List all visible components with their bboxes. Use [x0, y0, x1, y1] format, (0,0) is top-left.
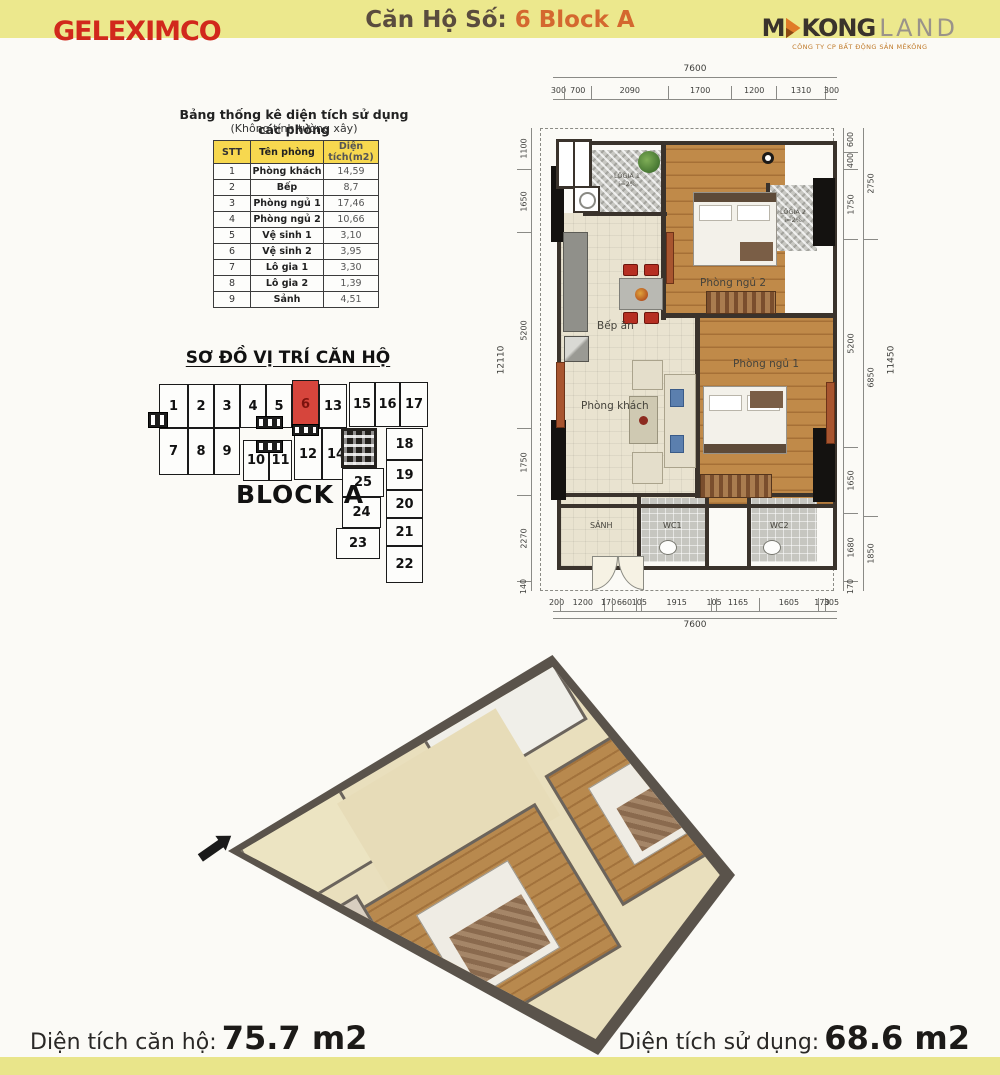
label-wc1: WC1	[663, 521, 682, 530]
fridge-icon	[564, 336, 589, 362]
dim-right-total: 11450	[884, 128, 898, 591]
area-table-head-row: STTTên phòngDiện tích(m2)	[214, 141, 379, 164]
footer-right-label: Diện tích sử dụng:	[618, 1030, 819, 1055]
wardrobe-bedroom1	[700, 474, 772, 498]
unit-8: 8	[188, 428, 214, 475]
footer-usable-area: Diện tích sử dụng: 68.6 m2	[618, 1019, 970, 1057]
dim-right-inner-segments: 6004001750520016501680170	[843, 128, 858, 591]
dimension-segment: 1915	[641, 598, 711, 611]
dining-chair	[623, 264, 638, 276]
dining-chair	[644, 264, 659, 276]
unit-13: 13	[319, 384, 347, 428]
apartment-3d-render	[228, 655, 735, 1055]
table-row: 1Phòng khách14,59	[214, 164, 379, 180]
unit-6: 6	[292, 380, 319, 428]
mekong-arrow-icon	[786, 18, 801, 39]
dimension-segment: 1750	[844, 169, 858, 240]
unit-18: 18	[386, 428, 423, 460]
entrance-arrow-icon	[198, 839, 224, 861]
dimension-segment: 5200	[844, 239, 858, 447]
footer-apartment-area: Diện tích căn hộ: 75.7 m2	[30, 1019, 367, 1057]
dimension-segment: 1200	[560, 598, 604, 611]
block-a-label: BLOCK A	[210, 480, 390, 509]
window-panel	[556, 362, 565, 428]
elevator-icon	[256, 440, 283, 453]
sofa	[664, 374, 696, 468]
stairs-core-icon	[341, 428, 377, 468]
dimension-segment: 1165	[716, 598, 759, 611]
dim-bottom-segments: 2001200170660105191510511651605170305	[553, 598, 837, 612]
dimension-segment: 1850	[864, 516, 878, 591]
kitchen-counter	[563, 232, 588, 332]
table-row: 3Phòng ngủ 117,46	[214, 196, 379, 212]
toilet-icon	[659, 540, 677, 555]
dimension-segment: 300	[553, 86, 564, 99]
dim-bottom-total: 7600	[553, 618, 837, 633]
dining-chair	[644, 312, 659, 324]
dimension-segment: 1650	[844, 447, 858, 514]
table-row: 8Lô gia 21,39	[214, 276, 379, 292]
ceiling-fan-icon	[762, 152, 774, 164]
flyer-page: GELEXIMCO Căn Hộ Số: 6 Block A M KONG LA…	[0, 0, 1000, 1075]
dimension-segment: 1650	[517, 169, 531, 232]
bed-bedroom1	[703, 386, 787, 454]
dim-top-total: 7600	[553, 64, 837, 78]
armchair	[632, 360, 663, 390]
dimension-segment: 140	[517, 581, 531, 591]
dimension-segment: 170	[604, 598, 611, 611]
unit-23: 23	[336, 528, 380, 559]
structural-column	[813, 178, 835, 246]
dimension-segment: 2270	[517, 495, 531, 581]
dimension-segment: 1750	[517, 428, 531, 495]
footer-band	[0, 1057, 1000, 1075]
column-header: Tên phòng	[251, 141, 324, 164]
dimension-segment: 1100	[517, 128, 531, 169]
unit-3: 3	[214, 384, 240, 428]
label-logia1: LÔGIA 1i=2%	[600, 172, 654, 188]
unit-15: 15	[349, 382, 375, 427]
dimension-segment: 2750	[864, 128, 878, 239]
unit-7: 7	[159, 428, 188, 475]
table-row: 9Sảnh4,51	[214, 292, 379, 308]
interior-wall	[705, 497, 709, 567]
interior-wall	[747, 497, 751, 567]
title-unit: 6 Block A	[515, 7, 635, 33]
label-bedroom2: Phòng ngủ 2	[700, 277, 766, 289]
unit-21: 21	[386, 518, 423, 546]
unit-20: 20	[386, 490, 423, 518]
armchair	[632, 452, 663, 484]
dimension-segment: 2090	[591, 86, 668, 99]
dimension-segment: 170	[844, 581, 858, 591]
area-table-subtitle: (Không tính tường xây)	[168, 122, 420, 135]
unit-17: 17	[400, 382, 428, 427]
dimension-segment: 700	[564, 86, 591, 99]
label-logia2: LÔGIA 2i=2%	[770, 208, 816, 224]
table-row: 5Vệ sinh 13,10	[214, 228, 379, 244]
dimension-segment: 305	[825, 598, 837, 611]
location-diagram-title: SƠ ĐỒ VỊ TRÍ CĂN HỘ	[168, 348, 408, 368]
dimension-segment: 600	[844, 128, 858, 152]
dining-table	[619, 278, 663, 310]
mekong-m: M	[762, 14, 785, 42]
stairs-icon	[148, 412, 168, 428]
dimension-segment: 300	[825, 86, 837, 99]
unit-22: 22	[386, 546, 423, 583]
label-kitchen: Bếp ăn	[597, 320, 634, 332]
wardrobe-bedroom2	[706, 291, 776, 314]
area-table-body: 1Phòng khách14,592Bếp8,73Phòng ngủ 117,4…	[214, 164, 379, 308]
dim-left-segments: 11001650520017502270140	[517, 128, 532, 591]
table-row: 6Vệ sinh 23,95	[214, 244, 379, 260]
window-panel	[826, 382, 835, 444]
dimension-segment: 1200	[731, 86, 776, 99]
footer-left-value: 75.7 m2	[222, 1019, 368, 1057]
unit-2: 2	[188, 384, 214, 428]
bed-bedroom2	[693, 192, 777, 266]
structural-column	[551, 420, 566, 500]
footer-left-label: Diện tích căn hộ:	[30, 1030, 217, 1055]
dim-left-total: 12110	[494, 128, 508, 591]
dimension-segment: 1700	[668, 86, 731, 99]
entry-window	[556, 139, 592, 189]
render-floor	[228, 655, 735, 1055]
table-row: 7Lô gia 13,30	[214, 260, 379, 276]
dimension-segment: 200	[553, 598, 560, 611]
dim-top-segments: 3007002090170012001310300	[553, 86, 837, 100]
column-header: Diện tích(m2)	[324, 141, 379, 164]
unit-16: 16	[375, 382, 400, 427]
title-prefix: Căn Hộ Số:	[365, 7, 506, 33]
washing-machine-icon	[573, 186, 600, 213]
dim-right-mid-segments: 275068501850	[863, 128, 878, 591]
footer-right-value: 68.6 m2	[824, 1019, 970, 1057]
dimension-segment: 400	[844, 152, 858, 169]
label-hall: SẢNH	[590, 521, 613, 530]
table-row: 4Phòng ngủ 210,66	[214, 212, 379, 228]
mekong-kong: KONG	[802, 14, 876, 42]
column-header: STT	[214, 141, 251, 164]
elevator-icon	[292, 424, 319, 436]
dimension-segment: 1605	[759, 598, 818, 611]
unit-19: 19	[386, 460, 423, 490]
elevator-icon	[256, 416, 283, 429]
door-panel	[666, 232, 674, 284]
label-bedroom1: Phòng ngủ 1	[733, 358, 799, 370]
label-living: Phòng khách	[581, 400, 649, 412]
toilet-icon	[763, 540, 781, 555]
table-row: 2Bếp8,7	[214, 180, 379, 196]
dimension-segment: 5200	[517, 232, 531, 428]
area-table: STTTên phòngDiện tích(m2) 1Phòng khách14…	[213, 140, 379, 308]
dimension-segment: 1310	[776, 86, 825, 99]
plant-icon	[698, 713, 717, 732]
plant-icon	[638, 151, 660, 173]
mekong-land: LAND	[879, 14, 958, 42]
label-wc2: WC2	[770, 521, 789, 530]
mekong-land-logo: M KONG LAND CÔNG TY CP BẤT ĐỘNG SẢN MÊKÔ…	[762, 14, 958, 51]
mekong-subtitle: CÔNG TY CP BẤT ĐỘNG SẢN MÊKÔNG	[762, 43, 958, 51]
dimension-segment: 6850	[864, 239, 878, 516]
dimension-segment: 1680	[844, 513, 858, 581]
unit-9: 9	[214, 428, 240, 475]
